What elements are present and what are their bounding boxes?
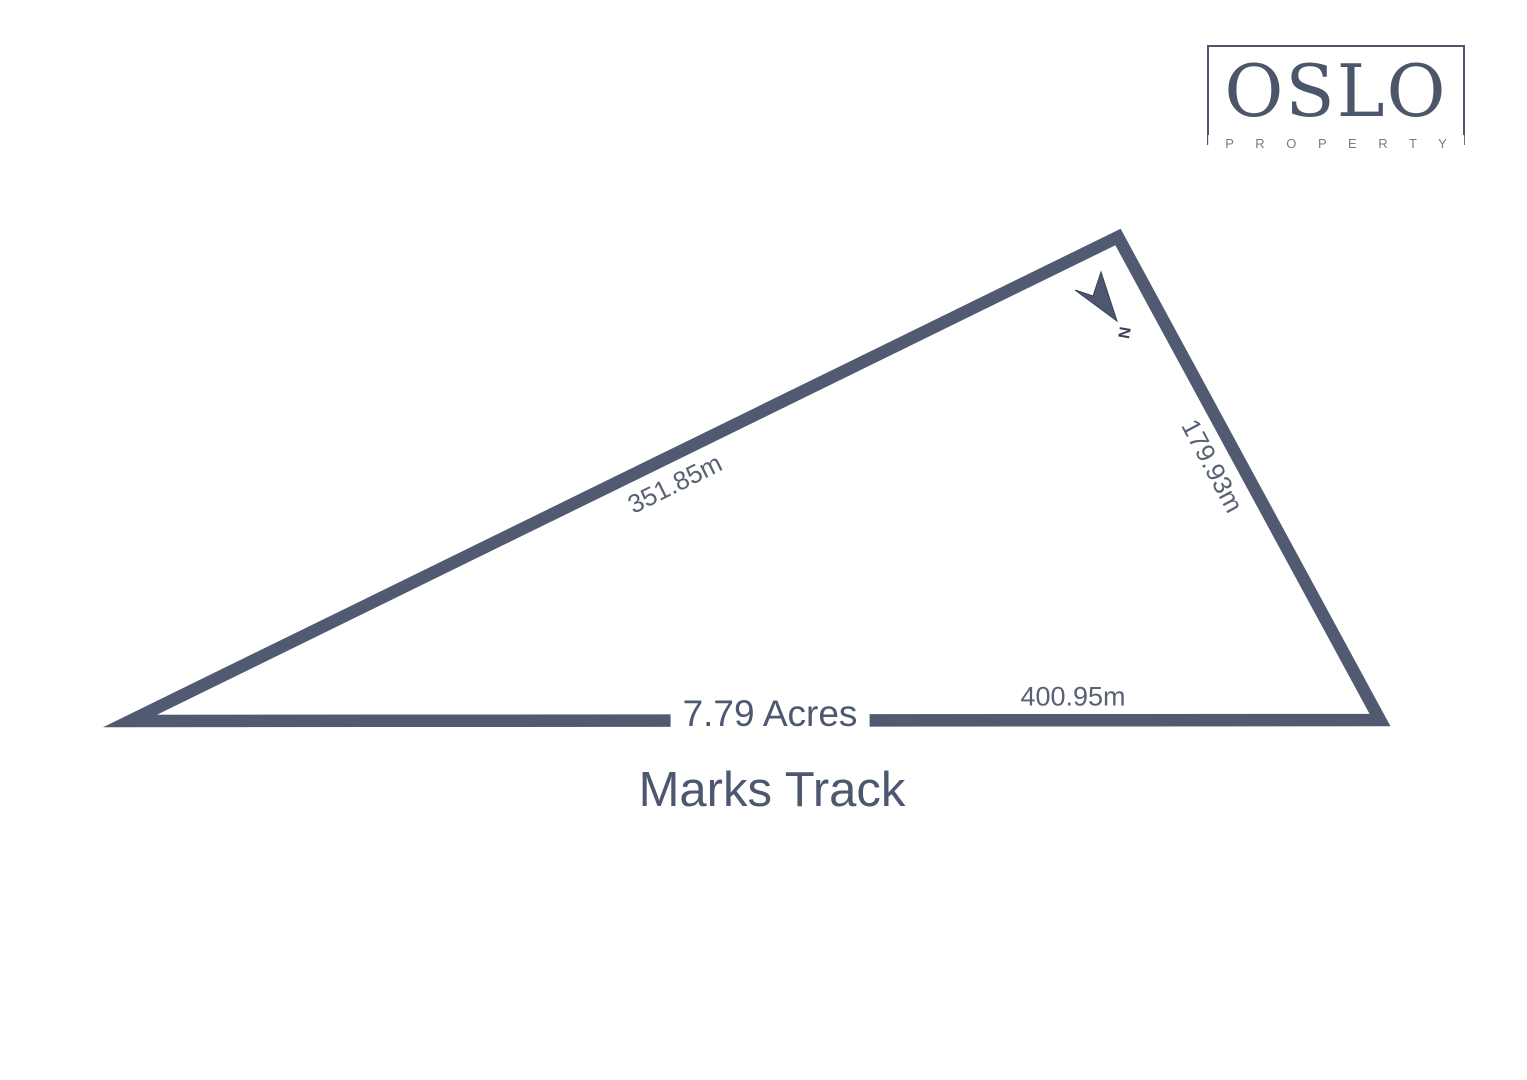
area-label: 7.79 Acres xyxy=(671,691,870,737)
logo-wordmark: OSLO xyxy=(1209,55,1463,127)
logo-subtitle: P R O P E R T Y xyxy=(1208,135,1464,153)
parcel-boundary xyxy=(130,237,1380,721)
plat-diagram: 351.85m 179.93m 400.95m 7.79 Acres Marks… xyxy=(0,0,1527,1080)
street-name: Marks Track xyxy=(639,762,906,818)
brand-logo: OSLO P R O P E R T Y xyxy=(1207,45,1465,145)
parcel-outline-svg xyxy=(0,0,1527,1080)
north-arrow-icon xyxy=(1075,272,1117,321)
side-length-south: 400.95m xyxy=(1020,682,1125,713)
